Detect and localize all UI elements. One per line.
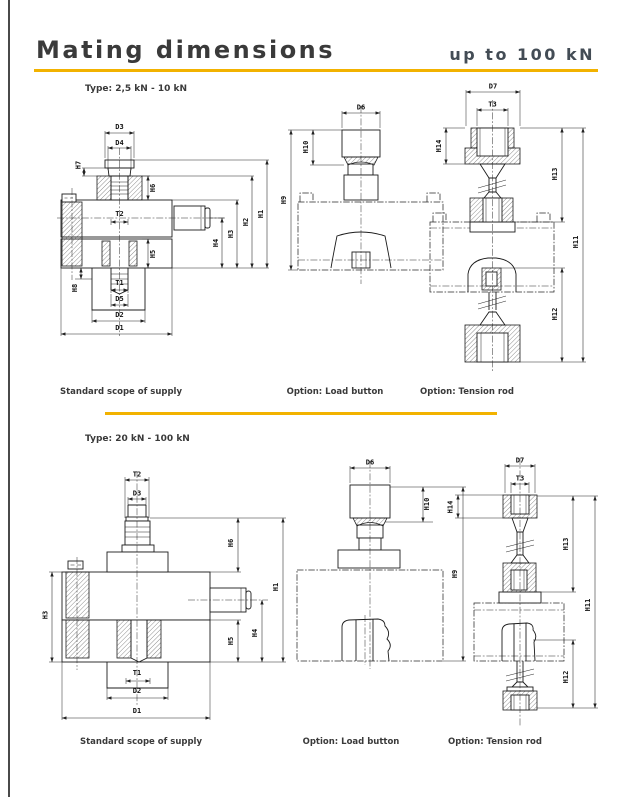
caption-tension-rod-2: Option: Tension rod (445, 737, 545, 747)
dim-label-h7: H7 (75, 161, 83, 169)
dim-label-h8: H8 (71, 284, 79, 292)
dim-label-t1: T1 (133, 669, 141, 677)
dim-label-d6: D6 (357, 104, 365, 112)
dim-label-d6: D6 (366, 459, 374, 467)
dim-label-h3: H3 (42, 611, 50, 619)
dim-label-d3: D3 (115, 123, 123, 131)
title-underline (34, 69, 598, 72)
dim-label-h14: H14 (447, 501, 455, 514)
dim-label-h6: H6 (149, 184, 157, 192)
dim-label-d3: D3 (133, 490, 141, 498)
dim-label-t3: T3 (488, 101, 496, 109)
dim-label-d1: D1 (133, 707, 141, 715)
dim-label-h14: H14 (435, 140, 443, 153)
dim-label-t2: T2 (133, 471, 141, 479)
dim-label-d5: D5 (115, 295, 123, 303)
drawing-load-button-small: D6 H10 H9 (278, 100, 448, 290)
dim-label-h12: H12 (551, 308, 559, 321)
dim-label-h1: H1 (272, 583, 280, 591)
section-divider (105, 412, 497, 415)
dim-label-t3: T3 (516, 475, 524, 483)
caption-standard-scope-1: Standard scope of supply (59, 387, 183, 397)
dim-label-h4: H4 (212, 239, 220, 247)
drawing-standard-large: T2 D3 H6 H1 H4 H5 H3 T1 D2 D1 (44, 465, 295, 732)
dim-label-h5: H5 (227, 637, 235, 645)
dim-label-h3: H3 (227, 230, 235, 238)
caption-standard-scope-2: Standard scope of supply (79, 737, 203, 747)
page-title: Mating dimensions (36, 36, 335, 64)
dim-label-h1: H1 (257, 210, 265, 218)
drawing-standard-small: D3 D4 H7 H6 T2 H5 H8 T1 D5 D2 D1 H4 H3 H… (55, 118, 285, 340)
dim-label-d7: D7 (516, 457, 524, 465)
caption-load-button-1: Option: Load button (285, 387, 385, 397)
dim-label-d2: D2 (133, 687, 141, 695)
drawing-tension-rod-large: D7 T3 H14 H13 H11 H12 (440, 450, 612, 730)
dim-label-h13: H13 (551, 168, 559, 181)
dim-label-h12: H12 (562, 671, 570, 684)
dim-label-h13: H13 (562, 538, 570, 551)
dim-label-h2: H2 (242, 218, 250, 226)
dim-label-h10: H10 (423, 498, 431, 511)
dim-label-h9: H9 (280, 196, 288, 204)
dim-label-t2: T2 (115, 210, 123, 218)
dim-label-d1: D1 (115, 324, 123, 332)
dim-label-h6: H6 (227, 539, 235, 547)
dim-label-d4: D4 (115, 139, 123, 147)
type-label-20-100kN: Type: 20 kN - 100 kN (85, 434, 190, 444)
dim-label-t1: T1 (115, 279, 123, 287)
dim-label-d7: D7 (489, 83, 497, 91)
dim-label-h11: H11 (584, 599, 592, 612)
caption-load-button-2: Option: Load button (301, 737, 401, 747)
dim-label-h11: H11 (572, 236, 580, 249)
page-edge (8, 0, 10, 797)
type-label-2_5-10kN: Type: 2,5 kN - 10 kN (85, 84, 187, 94)
dim-label-h4: H4 (251, 629, 259, 637)
dim-label-h5: H5 (149, 250, 157, 258)
caption-tension-rod-1: Option: Tension rod (417, 387, 517, 397)
dim-label-h10: H10 (302, 141, 310, 154)
drawing-tension-rod-small: D7 T3 H14 H13 H11 H12 (428, 82, 600, 375)
page-subtitle: up to 100 kN (449, 45, 595, 64)
dim-label-d2: D2 (115, 311, 123, 319)
